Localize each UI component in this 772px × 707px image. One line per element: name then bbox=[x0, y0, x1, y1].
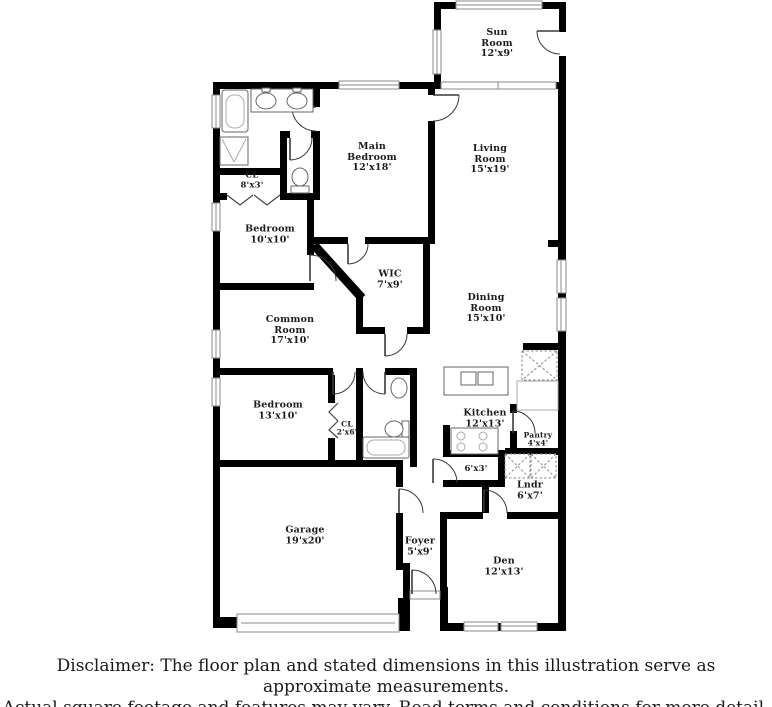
door-garage-entry bbox=[399, 489, 423, 513]
window bbox=[339, 81, 399, 89]
refrigerator-icon bbox=[522, 351, 557, 380]
room-label-hall: 6'x3' bbox=[464, 465, 487, 475]
window bbox=[557, 298, 566, 331]
counter-icon bbox=[517, 381, 558, 410]
room-label-sun-room: Sun Room12'x9' bbox=[476, 28, 518, 60]
floor-plan-page: Sun Room12'x9' Main Bedroom12'x18' Livin… bbox=[0, 0, 772, 707]
bifold-cl-hall bbox=[254, 195, 280, 205]
door-main-bedroom bbox=[348, 244, 368, 264]
door-wic bbox=[385, 334, 407, 356]
door-wc bbox=[290, 138, 312, 160]
disclaimer-line-2: Actual square footage and features may v… bbox=[0, 698, 772, 707]
window bbox=[212, 203, 220, 231]
window bbox=[212, 330, 220, 358]
kitchen-island-icon bbox=[444, 367, 508, 395]
window bbox=[456, 1, 542, 9]
door-bedroom-middle bbox=[333, 372, 355, 394]
room-label-garage: Garage19'x20' bbox=[285, 525, 324, 546]
window bbox=[212, 95, 220, 128]
washer-icon bbox=[505, 454, 530, 478]
door-front bbox=[412, 570, 436, 594]
dryer-icon bbox=[531, 454, 556, 478]
floor-plan-drawing bbox=[0, 0, 772, 650]
window bbox=[464, 622, 498, 631]
garage-door bbox=[237, 614, 399, 632]
door-bathroom2 bbox=[363, 372, 385, 394]
room-label-closet-small: CL2'x6' bbox=[337, 421, 358, 438]
window bbox=[212, 378, 220, 406]
bifold-cl-hall bbox=[227, 195, 253, 205]
room-label-main-bedroom: Main Bedroom12'x18' bbox=[344, 142, 400, 174]
sliding-door bbox=[441, 82, 556, 89]
room-label-living-room: Living Room15'x19' bbox=[467, 144, 513, 176]
room-label-common-room: Common Room17'x10' bbox=[263, 315, 317, 347]
door-living-room bbox=[433, 95, 459, 121]
bathtub-icon bbox=[363, 437, 409, 458]
room-label-bedroom-front: Bedroom10'x10' bbox=[245, 224, 295, 245]
toilet-icon bbox=[385, 421, 409, 437]
window bbox=[557, 260, 566, 293]
room-label-closet-hall: CL8'x3' bbox=[240, 171, 263, 190]
stove-icon bbox=[451, 428, 498, 454]
disclaimer: Disclaimer: The floor plan and stated di… bbox=[0, 656, 772, 707]
sink-icon bbox=[391, 378, 407, 398]
window bbox=[433, 30, 441, 74]
door-sunroom bbox=[537, 31, 560, 54]
toilet-icon bbox=[291, 168, 309, 193]
shower-icon bbox=[220, 137, 248, 165]
room-label-den: Den12'x13' bbox=[484, 556, 523, 577]
room-label-pantry: Pantry4'x4' bbox=[524, 432, 553, 449]
room-label-wic: WIC7'x9' bbox=[377, 269, 403, 290]
room-label-kitchen: Kitchen12'x13' bbox=[463, 408, 506, 429]
room-label-bedroom-middle: Bedroom13'x10' bbox=[253, 400, 303, 421]
disclaimer-line-1: Disclaimer: The floor plan and stated di… bbox=[0, 656, 772, 698]
room-label-dining-room: Dining Room15'x10' bbox=[463, 293, 509, 325]
window bbox=[501, 622, 537, 631]
double-vanity-icon bbox=[251, 88, 313, 112]
door-garage-hall bbox=[433, 459, 457, 483]
bathtub-icon bbox=[222, 90, 248, 132]
room-label-foyer: Foyer5'x9' bbox=[405, 536, 435, 557]
bifold-cl-small bbox=[329, 403, 338, 421]
room-label-laundry: Lndr6'x7' bbox=[517, 480, 543, 501]
